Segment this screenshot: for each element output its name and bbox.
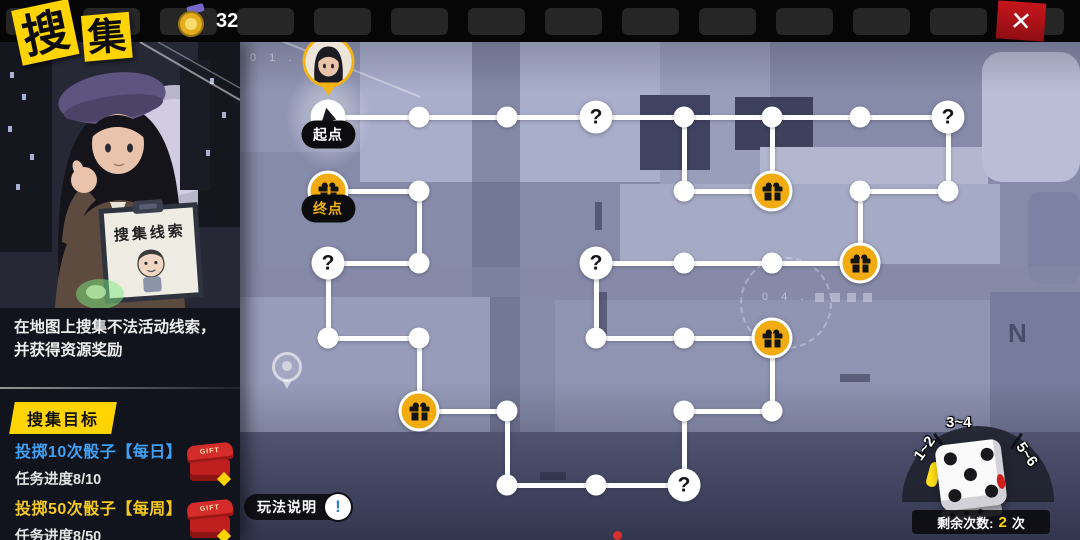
film-hole bbox=[853, 8, 910, 35]
remaining-rolls-label: 剩余次数: bbox=[937, 513, 993, 532]
board-node-dot bbox=[762, 107, 783, 128]
task-title: 投掷50次骰子【每周】 bbox=[15, 495, 182, 519]
gift-icon bbox=[762, 182, 782, 200]
film-hole bbox=[699, 8, 756, 35]
film-hole bbox=[391, 8, 448, 35]
task-daily: 投掷10次骰子【每日】 任务进度8/10 bbox=[15, 438, 182, 489]
task-progress: 任务进度8/50 bbox=[15, 525, 182, 540]
description-line: 并获得资源奖励 bbox=[14, 339, 226, 362]
film-hole bbox=[545, 8, 602, 35]
player-avatar bbox=[302, 42, 354, 88]
title-char: 集 bbox=[81, 12, 133, 62]
board-node-dot bbox=[762, 401, 783, 422]
collect-minigame-screen: 0 1 . 0 4 . N D 起点??终点??? 玩法说明 ! 1~2 3~4… bbox=[0, 0, 1080, 540]
how-to-play-button[interactable]: 玩法说明 ! bbox=[244, 494, 345, 520]
close-button[interactable]: ✕ bbox=[996, 0, 1047, 41]
gift-icon bbox=[409, 402, 429, 420]
board-node-dot bbox=[674, 107, 695, 128]
film-hole bbox=[930, 8, 987, 35]
board-node-dot bbox=[409, 107, 430, 128]
task-progress: 任务进度8/10 bbox=[15, 468, 182, 489]
board-node-q: ? bbox=[312, 247, 345, 280]
board-node-dot bbox=[674, 401, 695, 422]
character-art: 搜集线索 bbox=[0, 42, 240, 308]
gift-icon bbox=[850, 254, 870, 272]
title-char: 搜 bbox=[11, 0, 79, 66]
board-node-dot bbox=[762, 253, 783, 274]
left-panel: 搜集线索 在地图上搜集不法活动线索， 并获得资源奖励 搜集目标 投掷10次骰子【… bbox=[0, 42, 240, 540]
board-node-gift bbox=[840, 243, 881, 284]
currency-display: 32 bbox=[178, 5, 238, 37]
board-node-dot bbox=[850, 181, 871, 202]
remaining-rolls: 剩余次数: 2 次 bbox=[912, 510, 1050, 534]
dice-range-3-4: 3~4 bbox=[946, 414, 971, 431]
board-node-dot bbox=[497, 107, 518, 128]
board-edge bbox=[596, 261, 860, 266]
film-hole bbox=[776, 8, 833, 35]
board-node-dot bbox=[409, 328, 430, 349]
board-node-gift bbox=[752, 171, 793, 212]
gift-icon bbox=[762, 329, 782, 347]
close-icon: ✕ bbox=[1009, 5, 1033, 37]
remaining-rolls-unit: 次 bbox=[1012, 513, 1025, 532]
board-node-gift: 终点 bbox=[308, 171, 349, 212]
board-node-dot bbox=[674, 328, 695, 349]
end-point-label: 终点 bbox=[301, 195, 355, 223]
avatar-pointer-icon bbox=[319, 83, 337, 96]
board-node-dot bbox=[586, 475, 607, 496]
task-reward-button[interactable]: GIFT bbox=[185, 493, 235, 540]
board-node-dot bbox=[497, 401, 518, 422]
badge-icon bbox=[178, 5, 206, 37]
board-node-q: ? bbox=[580, 247, 613, 280]
board-node-dot bbox=[409, 253, 430, 274]
board-node-dot bbox=[850, 107, 871, 128]
board-node-dot bbox=[674, 253, 695, 274]
goal-header-banner: 搜集目标 bbox=[9, 402, 117, 434]
task-weekly: 投掷50次骰子【每周】 任务进度8/50 bbox=[15, 495, 182, 540]
board-map: 0 1 . 0 4 . N D 起点??终点??? 玩法说明 ! 1~2 3~4… bbox=[240, 42, 1080, 540]
board-node-q: ? bbox=[932, 101, 965, 134]
board-node-start: 起点 bbox=[311, 100, 346, 135]
page-title: 搜 集 bbox=[12, 0, 133, 65]
start-point-label: 起点 bbox=[301, 121, 355, 149]
remaining-rolls-value: 2 bbox=[998, 514, 1006, 531]
board-node-dot bbox=[318, 328, 339, 349]
board-edge bbox=[328, 336, 419, 341]
board-node-dot bbox=[409, 181, 430, 202]
board-node-q: ? bbox=[668, 469, 701, 502]
panel-divider bbox=[0, 387, 240, 389]
info-icon: ! bbox=[325, 494, 351, 520]
board-node-dot bbox=[674, 181, 695, 202]
mode-description: 在地图上搜集不法活动线索， 并获得资源奖励 bbox=[0, 308, 240, 363]
board-node-gift bbox=[399, 391, 440, 432]
board-edge bbox=[684, 409, 772, 414]
film-hole bbox=[622, 8, 679, 35]
currency-value: 32 bbox=[216, 10, 238, 33]
board-node-gift bbox=[752, 318, 793, 359]
goal-header-label: 搜集目标 bbox=[27, 406, 99, 430]
board-node-dot bbox=[938, 181, 959, 202]
board-node-dot bbox=[497, 475, 518, 496]
board-node-q: ? bbox=[580, 101, 613, 134]
how-to-play-label: 玩法说明 bbox=[257, 497, 317, 517]
film-hole bbox=[237, 8, 294, 35]
board-edge bbox=[860, 189, 948, 194]
task-title: 投掷10次骰子【每日】 bbox=[15, 438, 182, 462]
film-hole bbox=[468, 8, 525, 35]
task-reward-button[interactable]: GIFT bbox=[185, 436, 235, 486]
description-line: 在地图上搜集不法活动线索， bbox=[14, 316, 226, 339]
film-strip bbox=[0, 0, 1080, 42]
film-hole bbox=[314, 8, 371, 35]
board-node-dot bbox=[586, 328, 607, 349]
